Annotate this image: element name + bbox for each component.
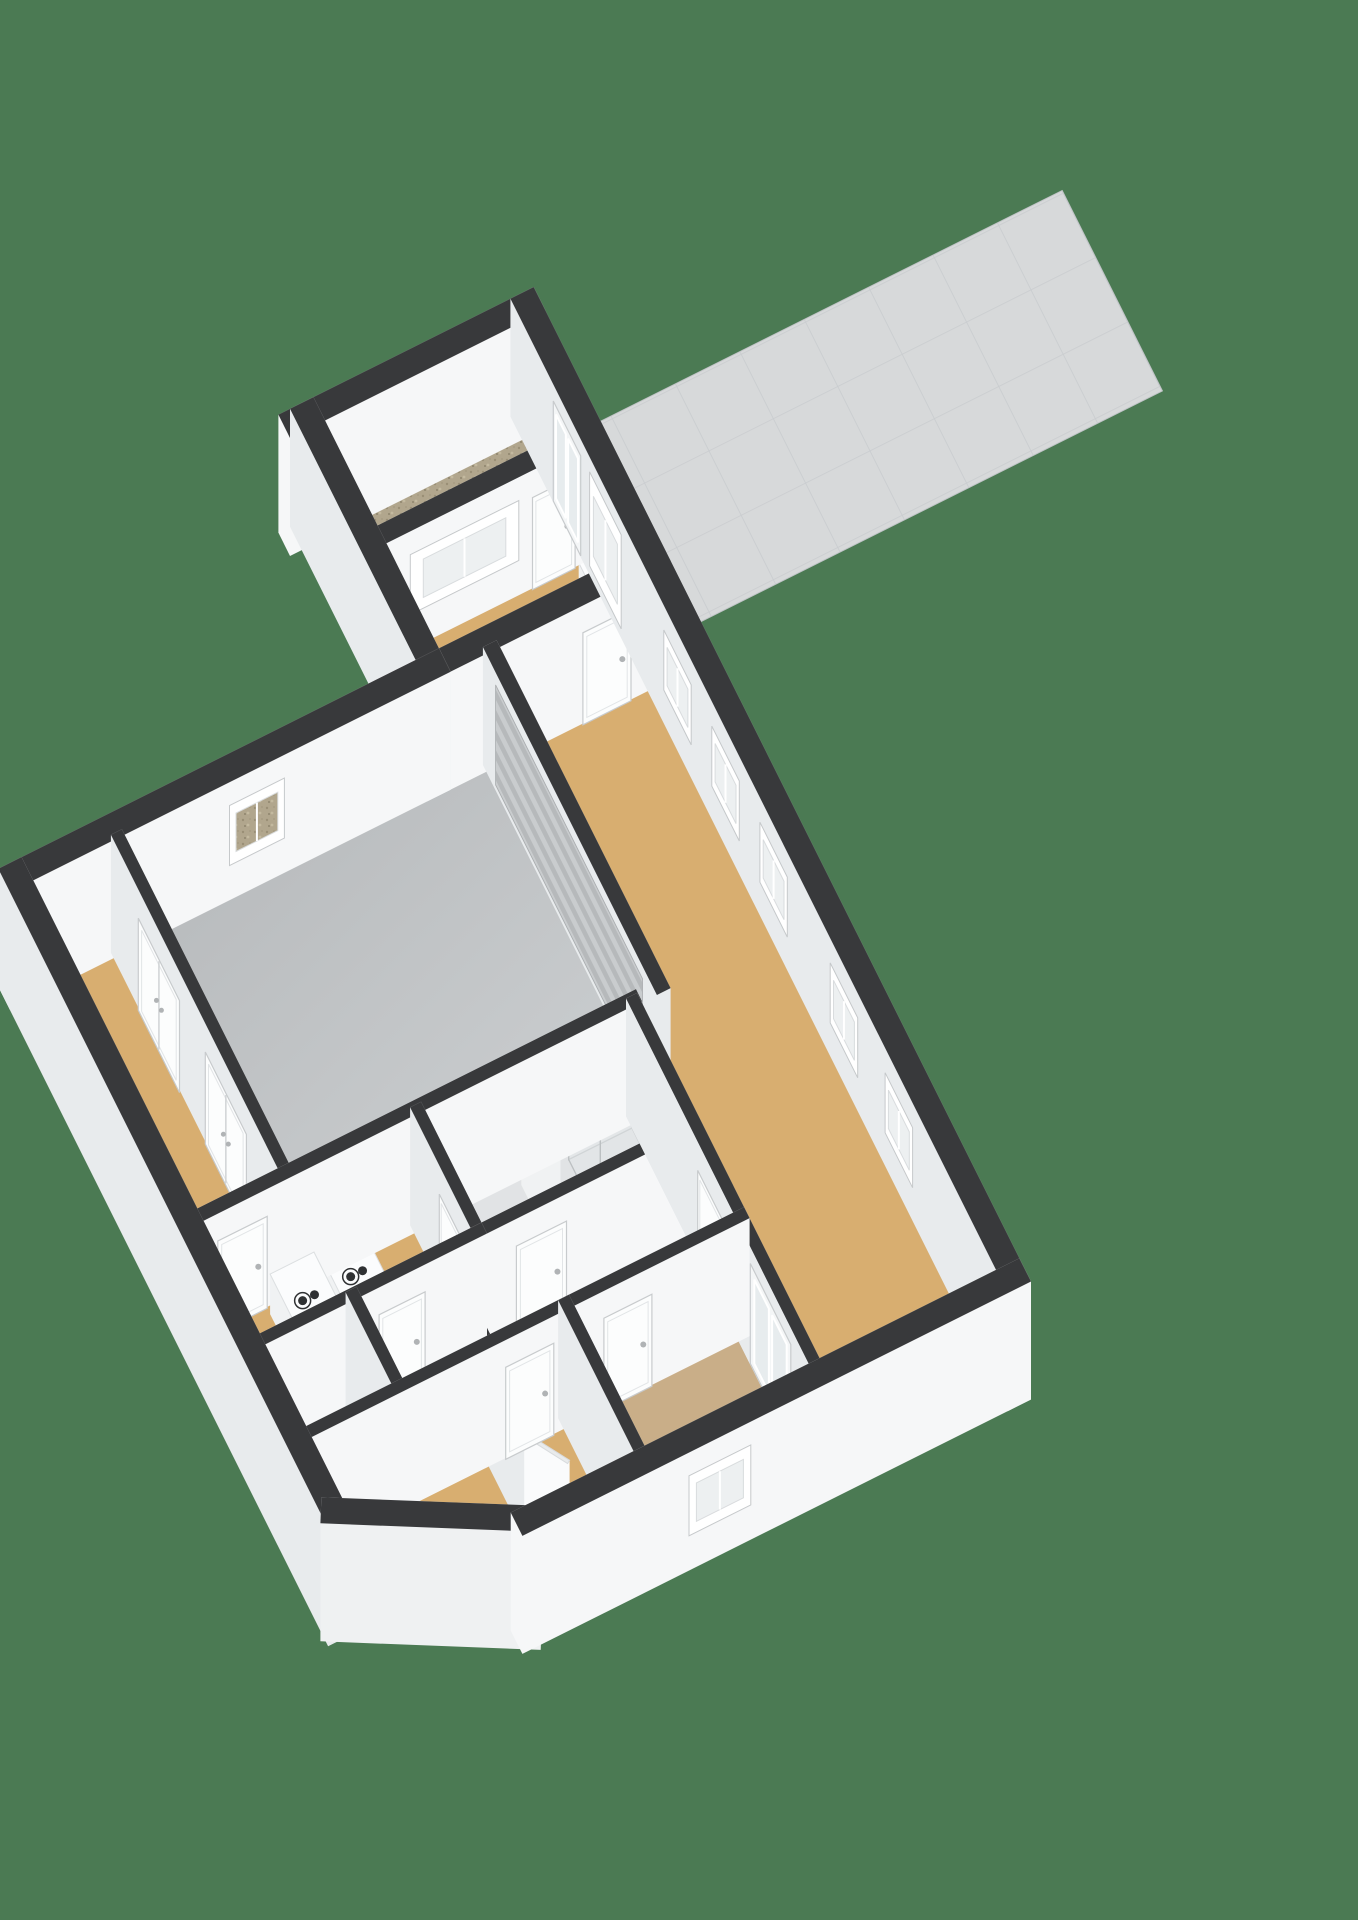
floorplan-stage: [0, 0, 1358, 1920]
wall-ext-chamfer: [320, 1497, 541, 1650]
floorplan-canvas: [0, 0, 1358, 1920]
floorplan-root: [0, 191, 1162, 1654]
